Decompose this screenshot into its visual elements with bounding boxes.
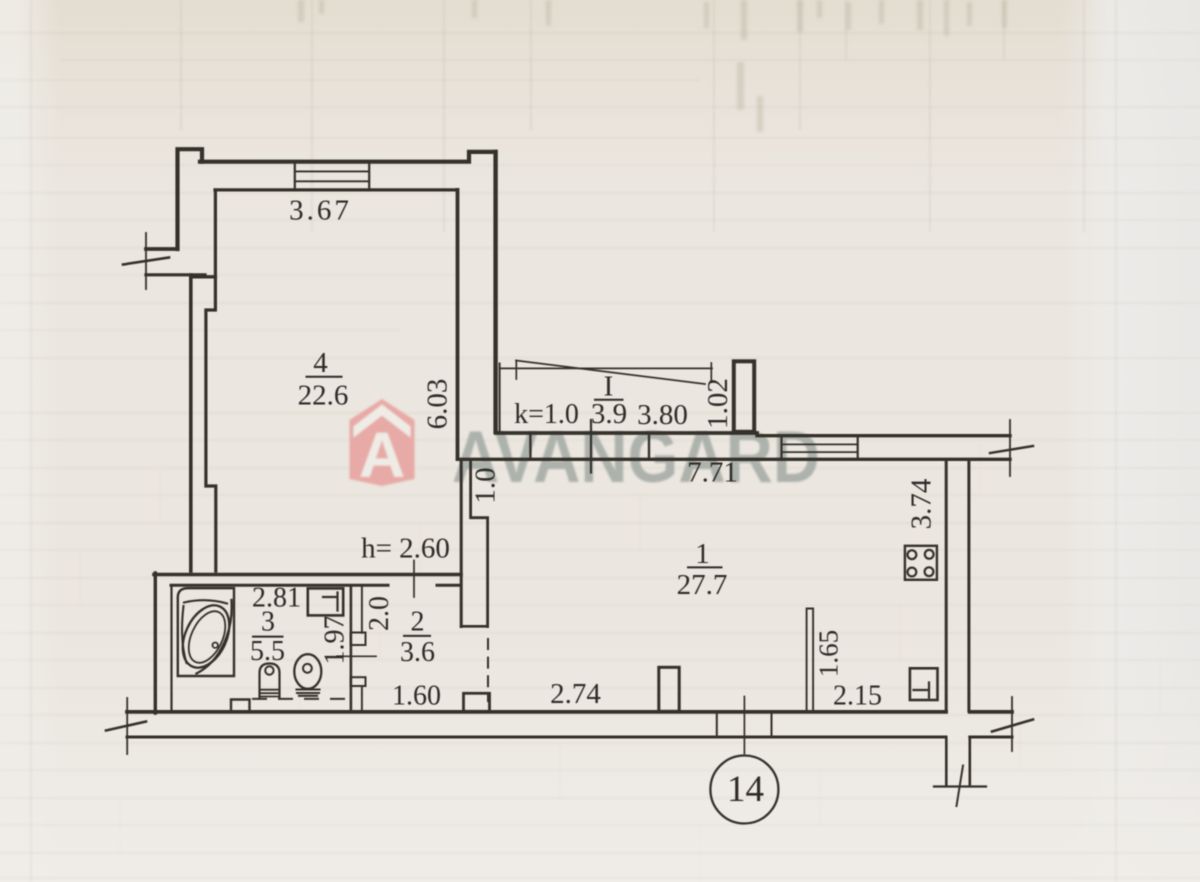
svg-text:2.81: 2.81: [252, 583, 301, 614]
svg-text:22.6: 22.6: [298, 380, 349, 412]
svg-text:k=1.0: k=1.0: [514, 399, 579, 430]
svg-text:3.67: 3.67: [289, 195, 352, 227]
svg-text:3.9: 3.9: [591, 398, 627, 430]
svg-text:27.7: 27.7: [677, 569, 728, 601]
svg-text:2.74: 2.74: [550, 678, 601, 710]
svg-text:h= 2.60: h= 2.60: [361, 533, 450, 565]
svg-text:6.03: 6.03: [422, 379, 454, 430]
svg-text:2: 2: [411, 607, 425, 638]
svg-text:1.02: 1.02: [702, 378, 734, 429]
svg-text:14: 14: [727, 769, 764, 810]
svg-text:3.74: 3.74: [906, 478, 938, 529]
svg-text:2.0: 2.0: [364, 596, 395, 631]
svg-text:1.65: 1.65: [814, 630, 844, 677]
svg-text:5.5: 5.5: [250, 636, 285, 667]
svg-text:7.71: 7.71: [687, 457, 738, 489]
svg-text:3: 3: [261, 607, 275, 638]
svg-text:3.6: 3.6: [400, 637, 435, 668]
svg-text:4: 4: [313, 347, 328, 379]
svg-text:AVANGARD: AVANGARD: [452, 417, 820, 498]
svg-text:3.80: 3.80: [637, 399, 688, 431]
svg-text:1.97: 1.97: [320, 616, 351, 665]
svg-text:1: 1: [695, 538, 710, 570]
svg-text:1.0: 1.0: [470, 467, 502, 503]
svg-text:A: A: [359, 419, 405, 491]
svg-text:2.15: 2.15: [833, 681, 882, 712]
svg-text:1.60: 1.60: [392, 681, 441, 712]
